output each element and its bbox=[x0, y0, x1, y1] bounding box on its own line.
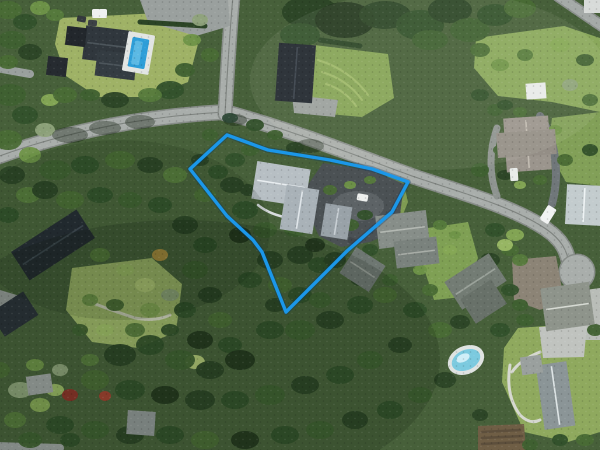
aerial-photo-canvas bbox=[0, 0, 600, 450]
aerial-photo bbox=[0, 0, 600, 450]
photo-grain-overlay bbox=[0, 0, 600, 450]
